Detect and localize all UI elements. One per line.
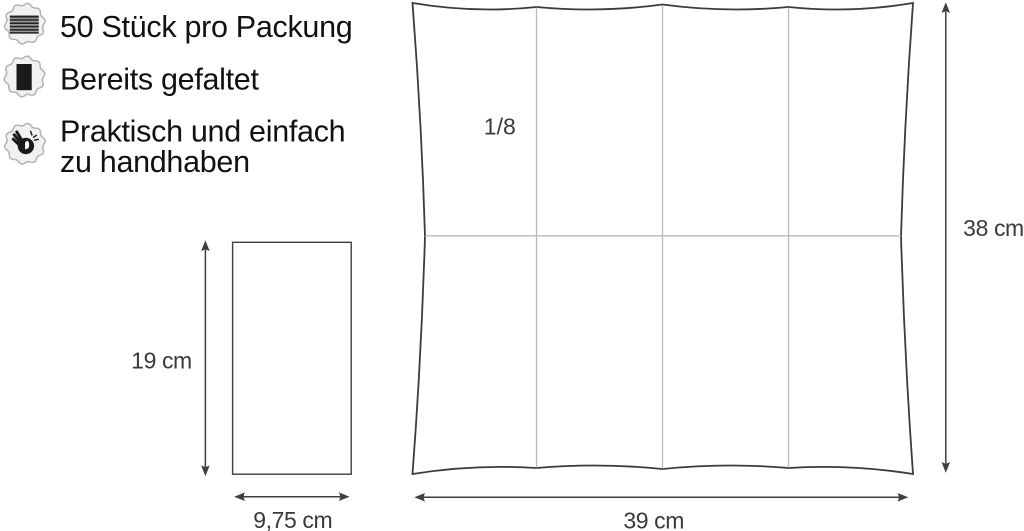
svg-text:zu handhaben: zu handhaben <box>60 145 250 179</box>
svg-text:Praktisch und einfach: Praktisch und einfach <box>60 115 345 149</box>
svg-text:1/8: 1/8 <box>484 114 516 140</box>
svg-text:Bereits gefaltet: Bereits gefaltet <box>60 63 259 97</box>
svg-text:9,75 cm: 9,75 cm <box>253 507 332 531</box>
svg-text:39 cm: 39 cm <box>623 508 684 531</box>
svg-text:38 cm: 38 cm <box>963 215 1024 241</box>
svg-text:19 cm: 19 cm <box>131 348 192 374</box>
svg-text:50 Stück pro Packung: 50 Stück pro Packung <box>60 10 352 44</box>
